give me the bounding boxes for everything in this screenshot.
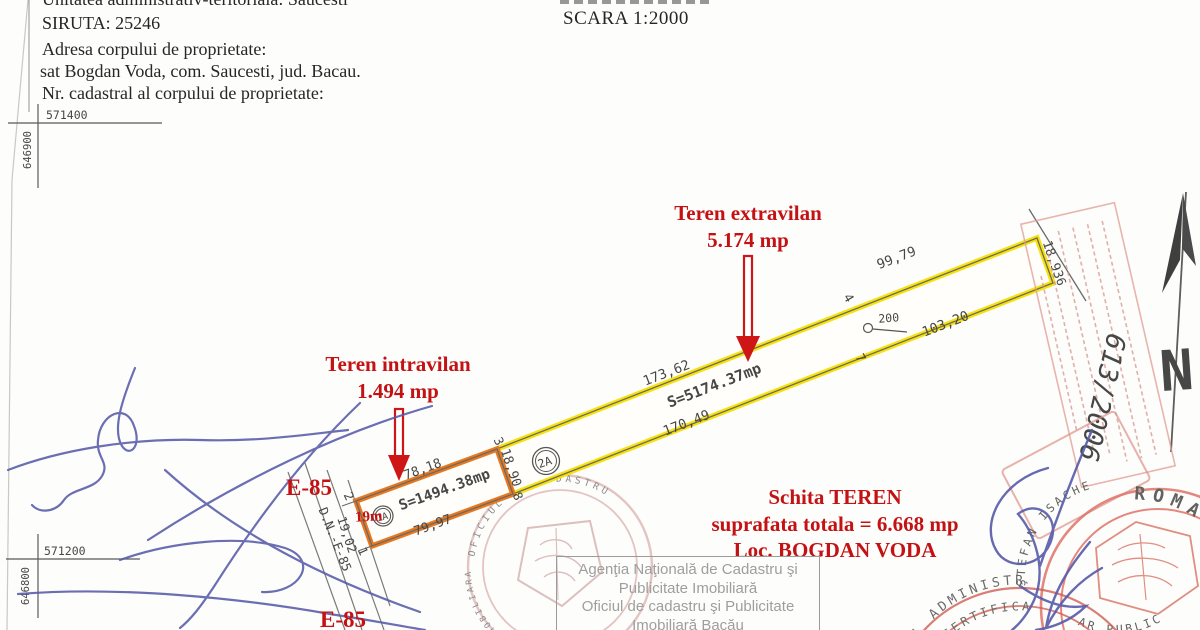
clipped-text-artifact (560, 0, 710, 4)
point-4: 4 (841, 291, 858, 305)
romania-crest (1096, 522, 1198, 614)
grid-x-bottom-label: 571200 (44, 544, 86, 558)
e85-upper-label: E-85 (286, 475, 332, 501)
agency-line2: Publicitate Imobiliară (557, 580, 819, 599)
extravilan-annotation: Teren extravilan 5.174 mp (638, 200, 858, 254)
edge-99-79: 99,79 (875, 244, 919, 274)
address-label: Adresa corpului de proprietate: (42, 38, 266, 60)
width-19m-label: 19m (355, 508, 383, 526)
scale-label: SCARA 1:2000 (563, 8, 689, 30)
address-value: sat Bogdan Voda, com. Saucesti, jud. Bac… (40, 60, 361, 82)
summary-line1: Schita TEREN (695, 484, 975, 511)
summary-annotation: Schita TEREN suprafata totala = 6.668 mp… (695, 484, 975, 564)
page-fold-line (7, 0, 28, 630)
agency-text-box: Agenţia Naţională de Cadastru şi Publici… (556, 556, 820, 630)
grid-y-bottom-label: 646800 (20, 567, 32, 605)
agency-line1: Agenţia Naţională de Cadastru şi (557, 561, 819, 580)
agency-line3: Oficiul de cadastru şi Publicitate (557, 598, 819, 617)
parcel-extravilan (484, 238, 1053, 499)
extravilan-area: 5.174 mp (638, 227, 858, 254)
cadastral-label: Nr. cadastral al corpului de proprietate… (42, 82, 324, 104)
intravilan-area: 1.494 mp (298, 378, 498, 405)
svg-text:AR PUBLIC: AR PUBLIC (1076, 610, 1165, 630)
agency-line4: Imobiliară Bacău (557, 617, 819, 630)
svg-text:200: 200 (878, 310, 900, 325)
intravilan-annotation: Teren intravilan 1.494 mp (298, 351, 498, 405)
summary-line2: suprafata totala = 6.668 mp (695, 511, 975, 538)
cadastral-plan-page: 571400 646900 571200 646800 OFICIUL DE C… (0, 0, 1200, 630)
e85-lower-label: E-85 (320, 607, 366, 630)
extravilan-title: Teren extravilan (638, 200, 858, 227)
grid-y-top-label: 646900 (22, 131, 34, 169)
intravilan-title: Teren intravilan (298, 351, 498, 378)
public-arc-text: AR PUBLIC (1076, 610, 1165, 630)
siruta-line: SIRUTA: 25246 (42, 12, 160, 34)
north-label: N (1158, 338, 1196, 405)
grid-x-top-label: 571400 (46, 108, 88, 122)
uat-line: Unitatea administrativ-teritoriala: Sauc… (42, 0, 348, 10)
